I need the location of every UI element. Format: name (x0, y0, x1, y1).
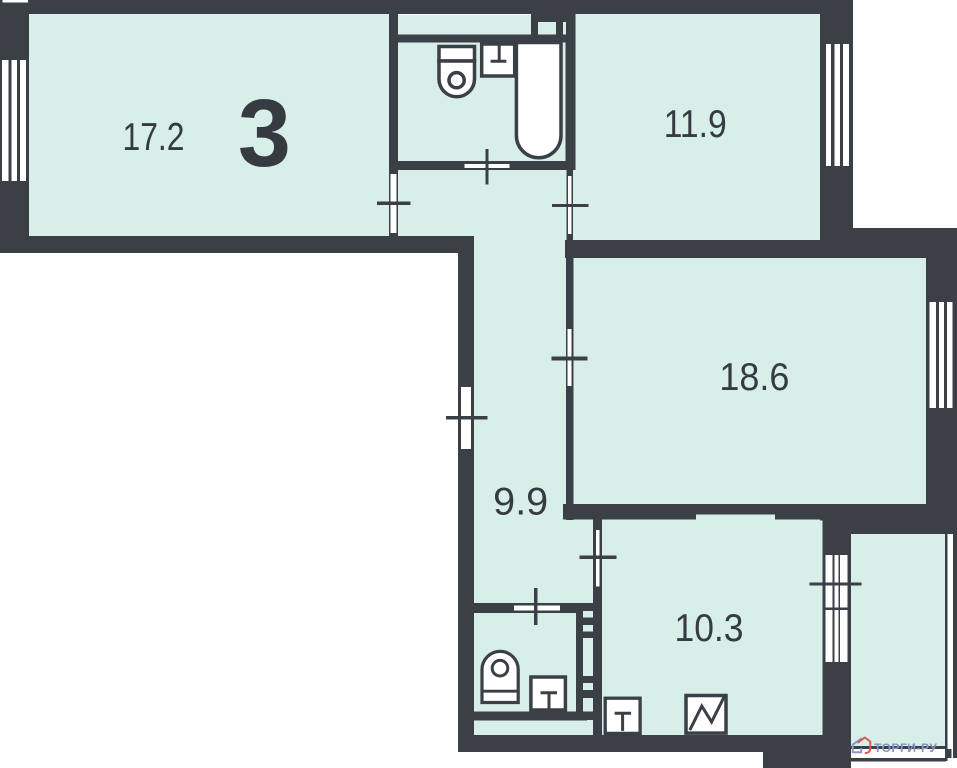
svg-text:17.2: 17.2 (123, 116, 185, 159)
svg-text:11.9: 11.9 (664, 103, 727, 146)
svg-text:9.9: 9.9 (493, 481, 548, 524)
svg-text:ТОРГИ-РУ: ТОРГИ-РУ (874, 741, 937, 755)
svg-text:3: 3 (238, 80, 291, 187)
svg-text:10.3: 10.3 (675, 607, 744, 650)
svg-text:18.6: 18.6 (719, 356, 789, 399)
